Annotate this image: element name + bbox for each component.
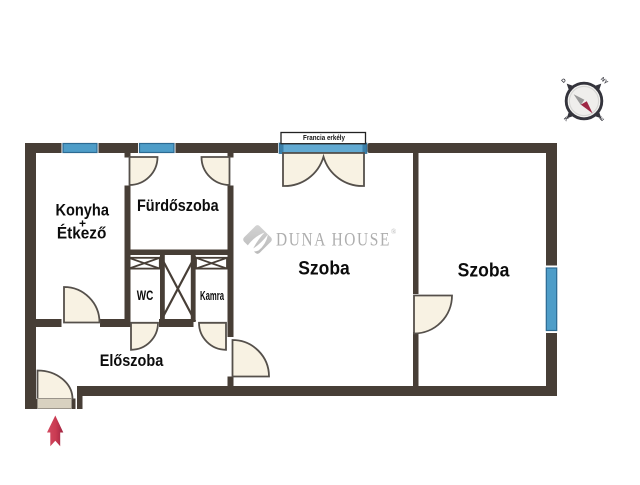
svg-text:Előszoba: Előszoba bbox=[100, 351, 164, 370]
svg-text:®: ® bbox=[391, 228, 397, 236]
svg-text:Francia erkély: Francia erkély bbox=[303, 133, 346, 142]
svg-text:Kamra: Kamra bbox=[200, 289, 225, 303]
svg-text:Étkező: Étkező bbox=[57, 224, 107, 243]
svg-text:Fürdőszoba: Fürdőszoba bbox=[137, 196, 219, 215]
svg-text:Szoba: Szoba bbox=[298, 258, 350, 279]
svg-text:Szoba: Szoba bbox=[458, 260, 510, 281]
svg-text:WC: WC bbox=[137, 287, 154, 303]
svg-text:DUNA HOUSE: DUNA HOUSE bbox=[276, 230, 391, 251]
